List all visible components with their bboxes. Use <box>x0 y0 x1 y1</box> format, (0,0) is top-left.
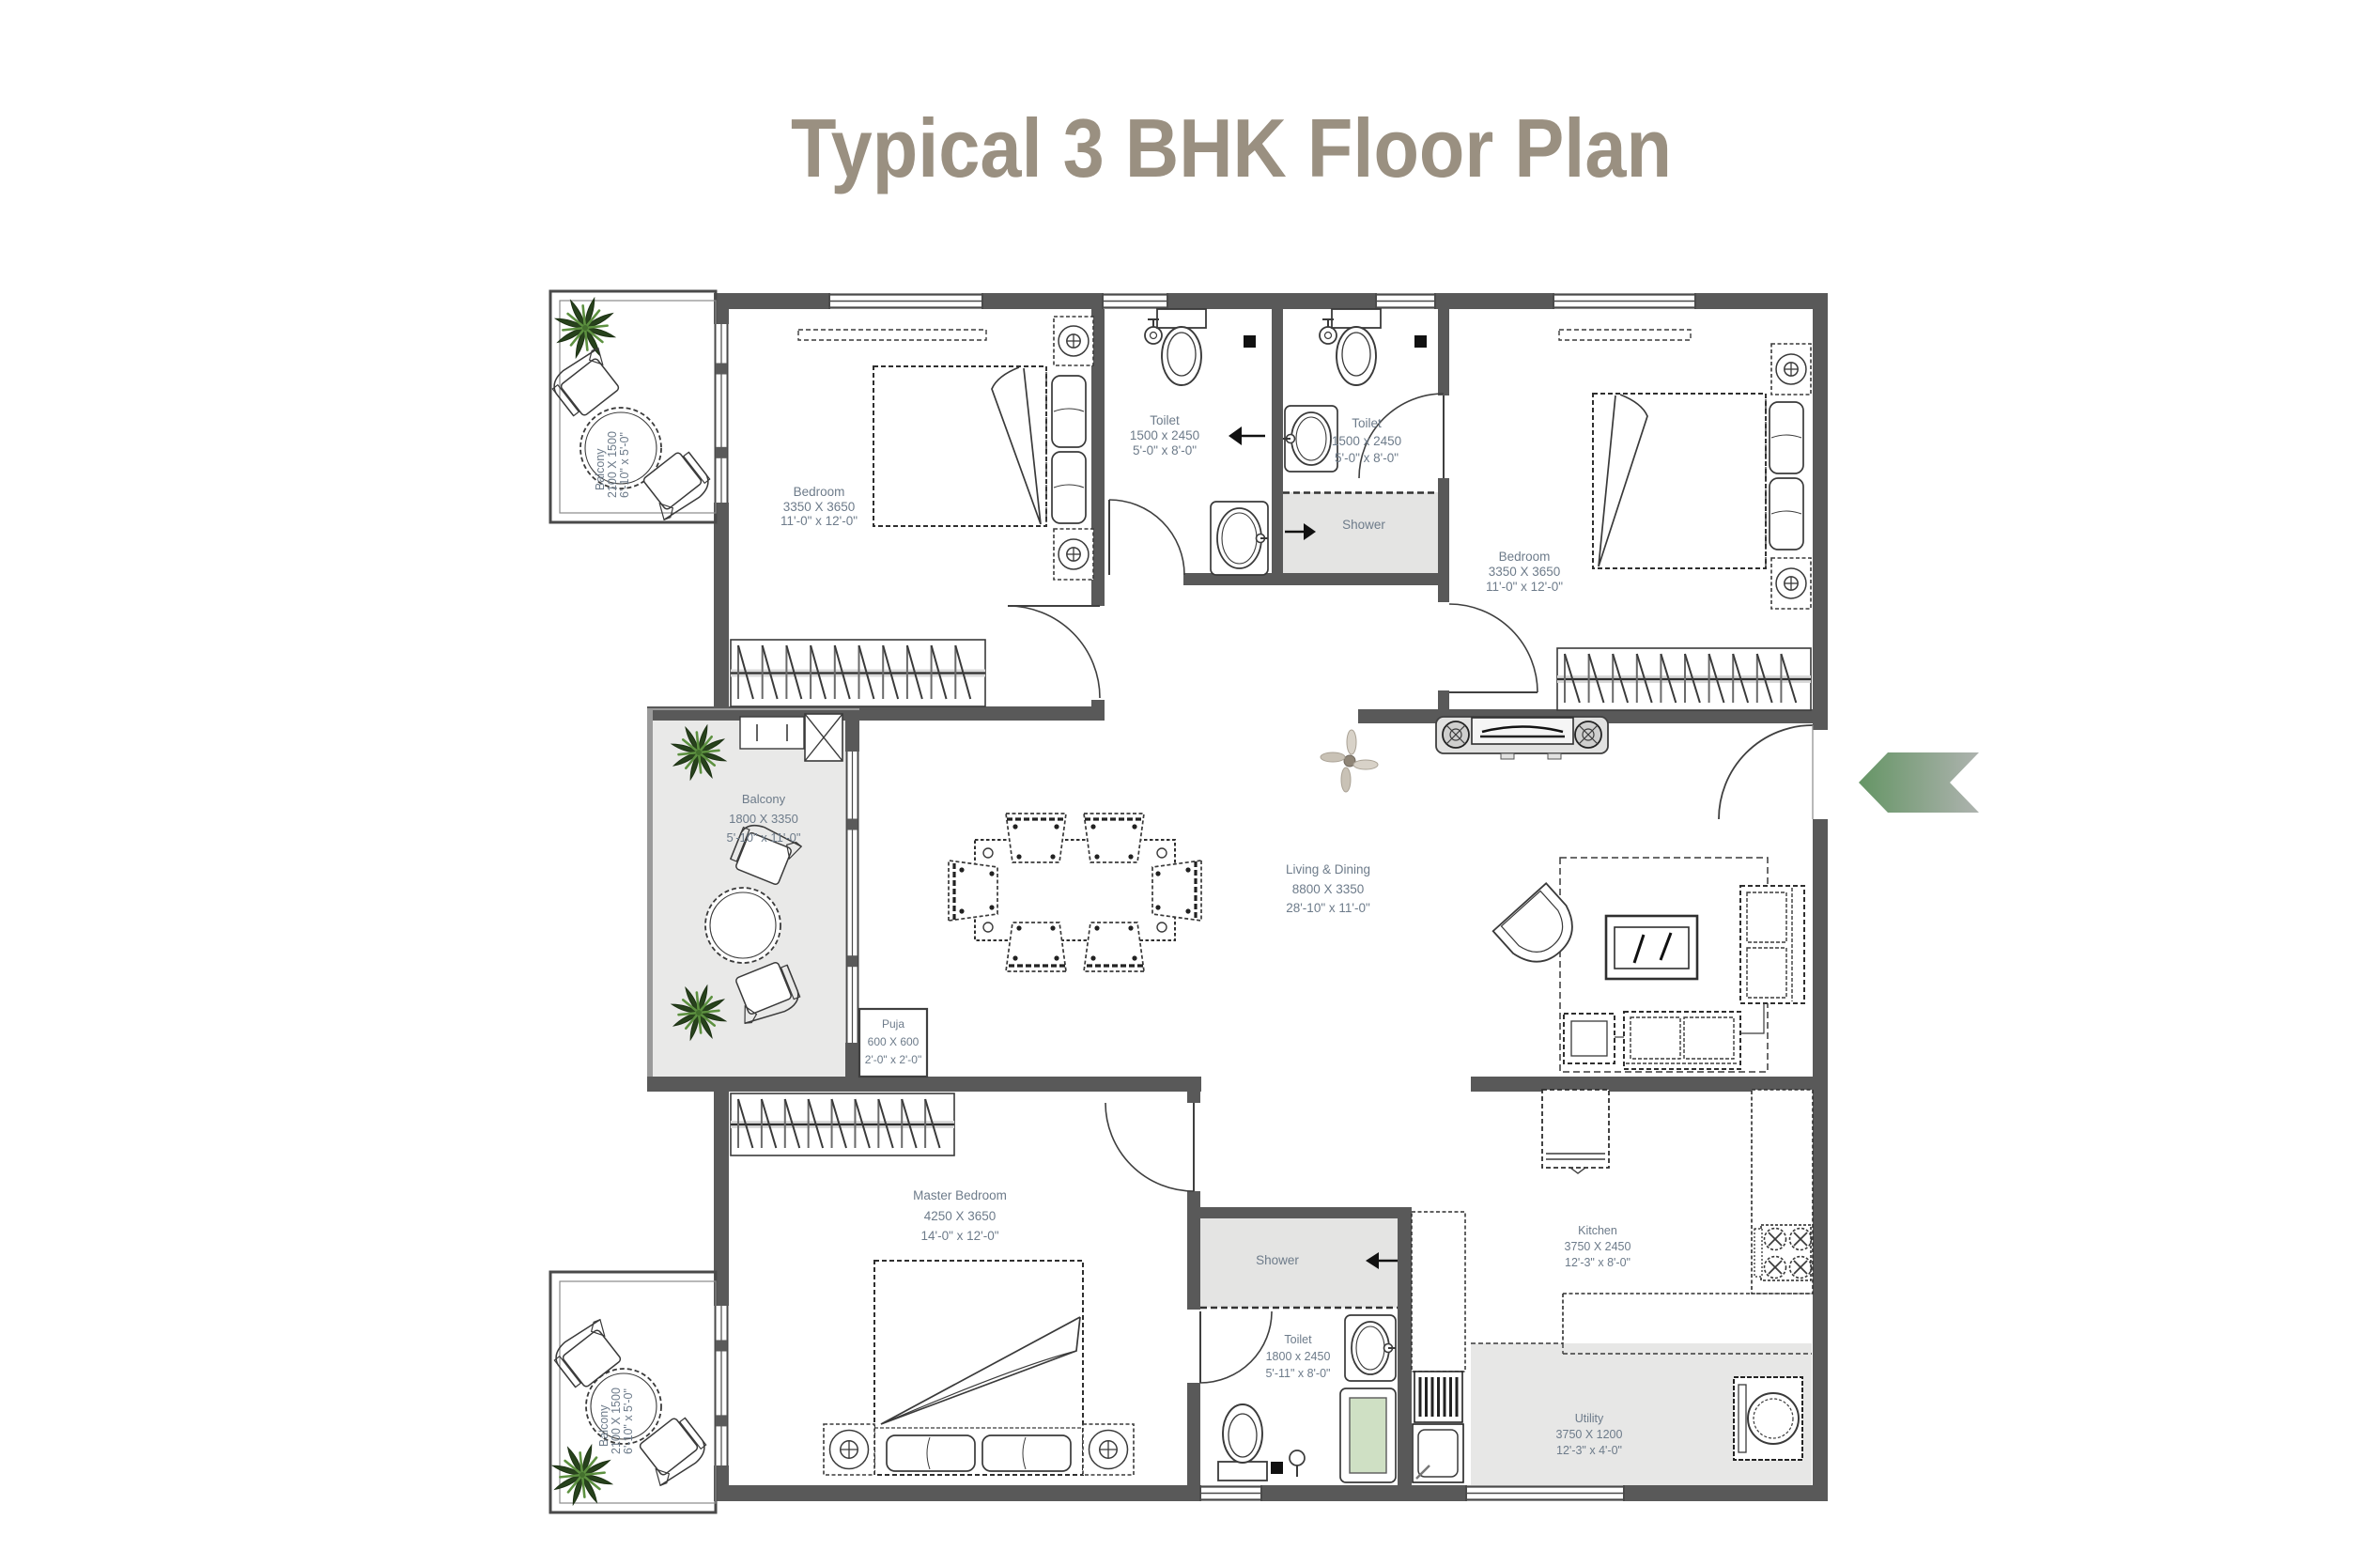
svg-text:3350 X 3650: 3350 X 3650 <box>783 500 856 514</box>
svg-text:Balcony: Balcony <box>742 792 786 806</box>
svg-text:11'-0" x 12'-0": 11'-0" x 12'-0" <box>1486 580 1563 594</box>
svg-text:Typical 3 BHK Floor Plan: Typical 3 BHK Floor Plan <box>791 101 1672 194</box>
svg-text:Master Bedroom: Master Bedroom <box>913 1188 1007 1202</box>
svg-text:1800 x 2450: 1800 x 2450 <box>1266 1350 1331 1363</box>
svg-text:Bedroom: Bedroom <box>794 485 845 499</box>
svg-text:4250 X 3650: 4250 X 3650 <box>924 1209 997 1223</box>
svg-text:Living & Dining: Living & Dining <box>1286 862 1370 876</box>
svg-text:Toilet: Toilet <box>1150 413 1180 427</box>
svg-text:Toilet: Toilet <box>1352 416 1382 430</box>
svg-text:Toilet: Toilet <box>1284 1333 1312 1346</box>
svg-text:12'-3" x 4'-0": 12'-3" x 4'-0" <box>1556 1444 1622 1457</box>
svg-text:Shower: Shower <box>1342 518 1385 532</box>
svg-text:Puja: Puja <box>882 1017 904 1031</box>
svg-text:Kitchen: Kitchen <box>1578 1224 1617 1237</box>
svg-text:5'-11" x 8'-0": 5'-11" x 8'-0" <box>1265 1367 1330 1380</box>
svg-text:1800 X 3350: 1800 X 3350 <box>729 812 798 826</box>
svg-text:600 X 600: 600 X 600 <box>868 1035 920 1048</box>
svg-text:Bedroom: Bedroom <box>1499 550 1551 564</box>
svg-text:14'-0" x 12'-0": 14'-0" x 12'-0" <box>920 1229 998 1243</box>
svg-text:1500 x 2450: 1500 x 2450 <box>1332 434 1401 448</box>
svg-text:11'-0" x 12'-0": 11'-0" x 12'-0" <box>780 514 858 528</box>
svg-text:3750 X 2450: 3750 X 2450 <box>1565 1240 1631 1253</box>
svg-text:Shower: Shower <box>1256 1253 1299 1267</box>
svg-text:3750 X 1200: 3750 X 1200 <box>1556 1428 1623 1441</box>
svg-text:5'-10" x 11'-0": 5'-10" x 11'-0" <box>727 830 801 845</box>
svg-text:12'-3" x 8'-0": 12'-3" x 8'-0" <box>1565 1256 1630 1269</box>
svg-text:3350 X 3650: 3350 X 3650 <box>1489 565 1561 579</box>
svg-text:5'-0" x 8'-0": 5'-0" x 8'-0" <box>1335 451 1399 465</box>
svg-text:2'-0" x 2'-0": 2'-0" x 2'-0" <box>865 1053 921 1066</box>
svg-text:1500 x 2450: 1500 x 2450 <box>1130 428 1199 442</box>
svg-text:Utility: Utility <box>1575 1412 1604 1425</box>
svg-text:8800 X 3350: 8800 X 3350 <box>1292 882 1365 896</box>
svg-text:28'-10" x 11'-0": 28'-10" x 11'-0" <box>1286 901 1370 915</box>
svg-text:5'-0" x 8'-0": 5'-0" x 8'-0" <box>1133 443 1197 457</box>
